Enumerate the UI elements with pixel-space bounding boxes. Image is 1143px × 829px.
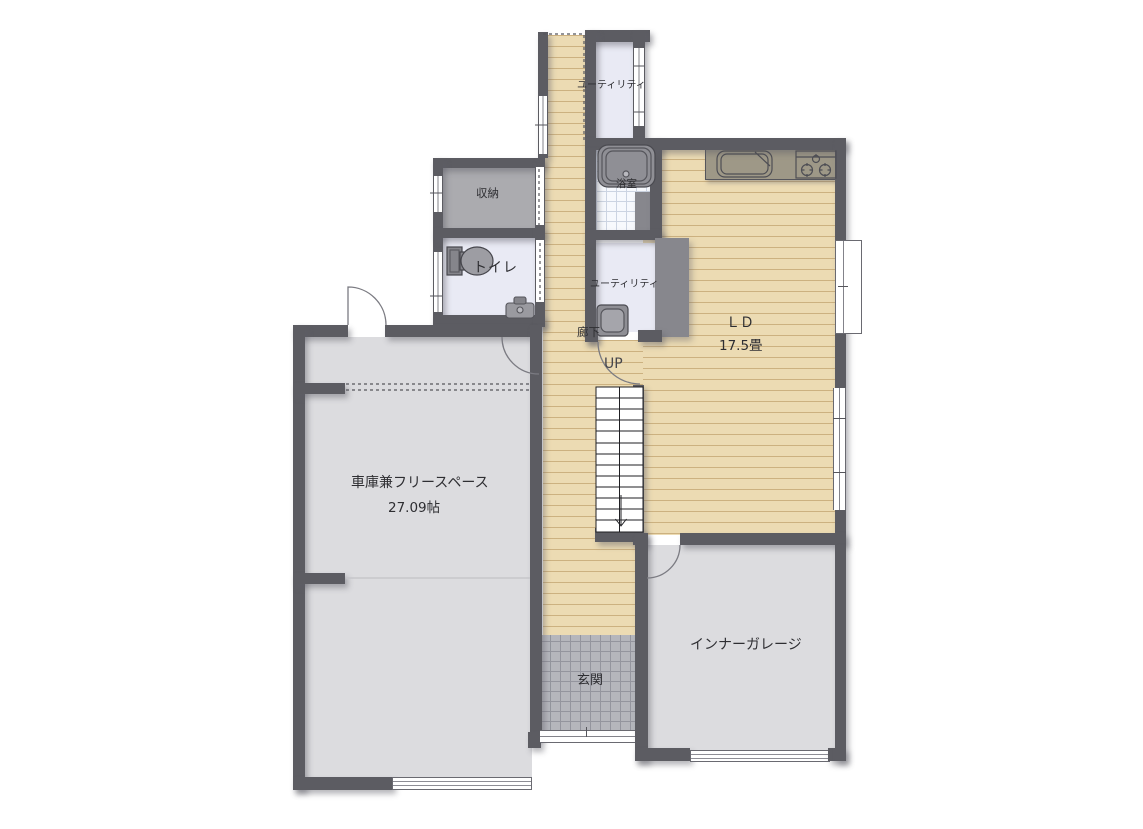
wall xyxy=(293,573,345,584)
wall xyxy=(680,533,846,545)
wall xyxy=(530,325,542,737)
wall xyxy=(293,325,305,790)
ld-window-tick xyxy=(833,472,846,473)
ld-bay-window xyxy=(835,240,862,334)
wall xyxy=(638,330,662,342)
wall xyxy=(835,545,846,761)
garage-shutter xyxy=(392,777,532,790)
wall xyxy=(635,748,690,761)
toilet-sliding-door xyxy=(536,240,544,302)
wall xyxy=(635,533,648,761)
entrance-door-tick xyxy=(586,727,587,737)
ld-window-tick xyxy=(833,418,846,419)
window xyxy=(434,252,442,312)
wall xyxy=(650,138,846,150)
wall xyxy=(293,383,345,394)
stairs-up-label: UP xyxy=(604,357,623,372)
garage-free-space-floor xyxy=(303,337,532,777)
floor-plan: ユーティリティ 収納 浴室 トイレ ユーティリティ 廊下 UP ＬＤ 17.5畳… xyxy=(0,0,1143,829)
wall xyxy=(433,158,545,168)
wall xyxy=(650,148,662,238)
garage-free-space-label: 車庫兼フリースペース xyxy=(351,476,489,491)
storage-sliding-door xyxy=(536,167,544,225)
storage-label: 収納 xyxy=(476,187,499,200)
kitchen-counter xyxy=(705,149,836,180)
plumbing-wall xyxy=(655,238,689,337)
toilet-label: トイレ xyxy=(473,261,518,276)
ld-bay-window-line xyxy=(843,241,844,333)
wall xyxy=(293,777,393,790)
garage-exterior-door xyxy=(348,287,386,325)
wall xyxy=(433,228,545,238)
entrance-label: 玄関 xyxy=(577,674,603,688)
window xyxy=(539,96,547,154)
bathroom-label: 浴室 xyxy=(616,179,637,191)
hallway-label: 廊下 xyxy=(577,326,600,339)
wall xyxy=(385,325,532,337)
entrance-door-line xyxy=(540,736,635,737)
toilet-floor xyxy=(443,238,537,316)
wall xyxy=(633,385,644,535)
inner-garage-shutter xyxy=(690,750,830,762)
window xyxy=(434,176,442,212)
utility-top-label: ユーティリティ xyxy=(577,80,646,91)
utility-top-floor xyxy=(596,42,634,142)
wall xyxy=(585,148,596,342)
utility-low-label: ユーティリティ xyxy=(590,279,659,290)
garage-free-space-area: 27.09帖 xyxy=(388,501,440,516)
wall xyxy=(585,230,662,240)
ld-window xyxy=(833,388,846,510)
living-dining-area: 17.5畳 xyxy=(719,339,763,354)
living-dining-label: ＬＤ xyxy=(726,316,754,331)
ld-bay-window-tick xyxy=(838,286,848,287)
hallway-floor xyxy=(543,340,643,635)
inner-garage-label: インナーガレージ xyxy=(690,638,802,653)
